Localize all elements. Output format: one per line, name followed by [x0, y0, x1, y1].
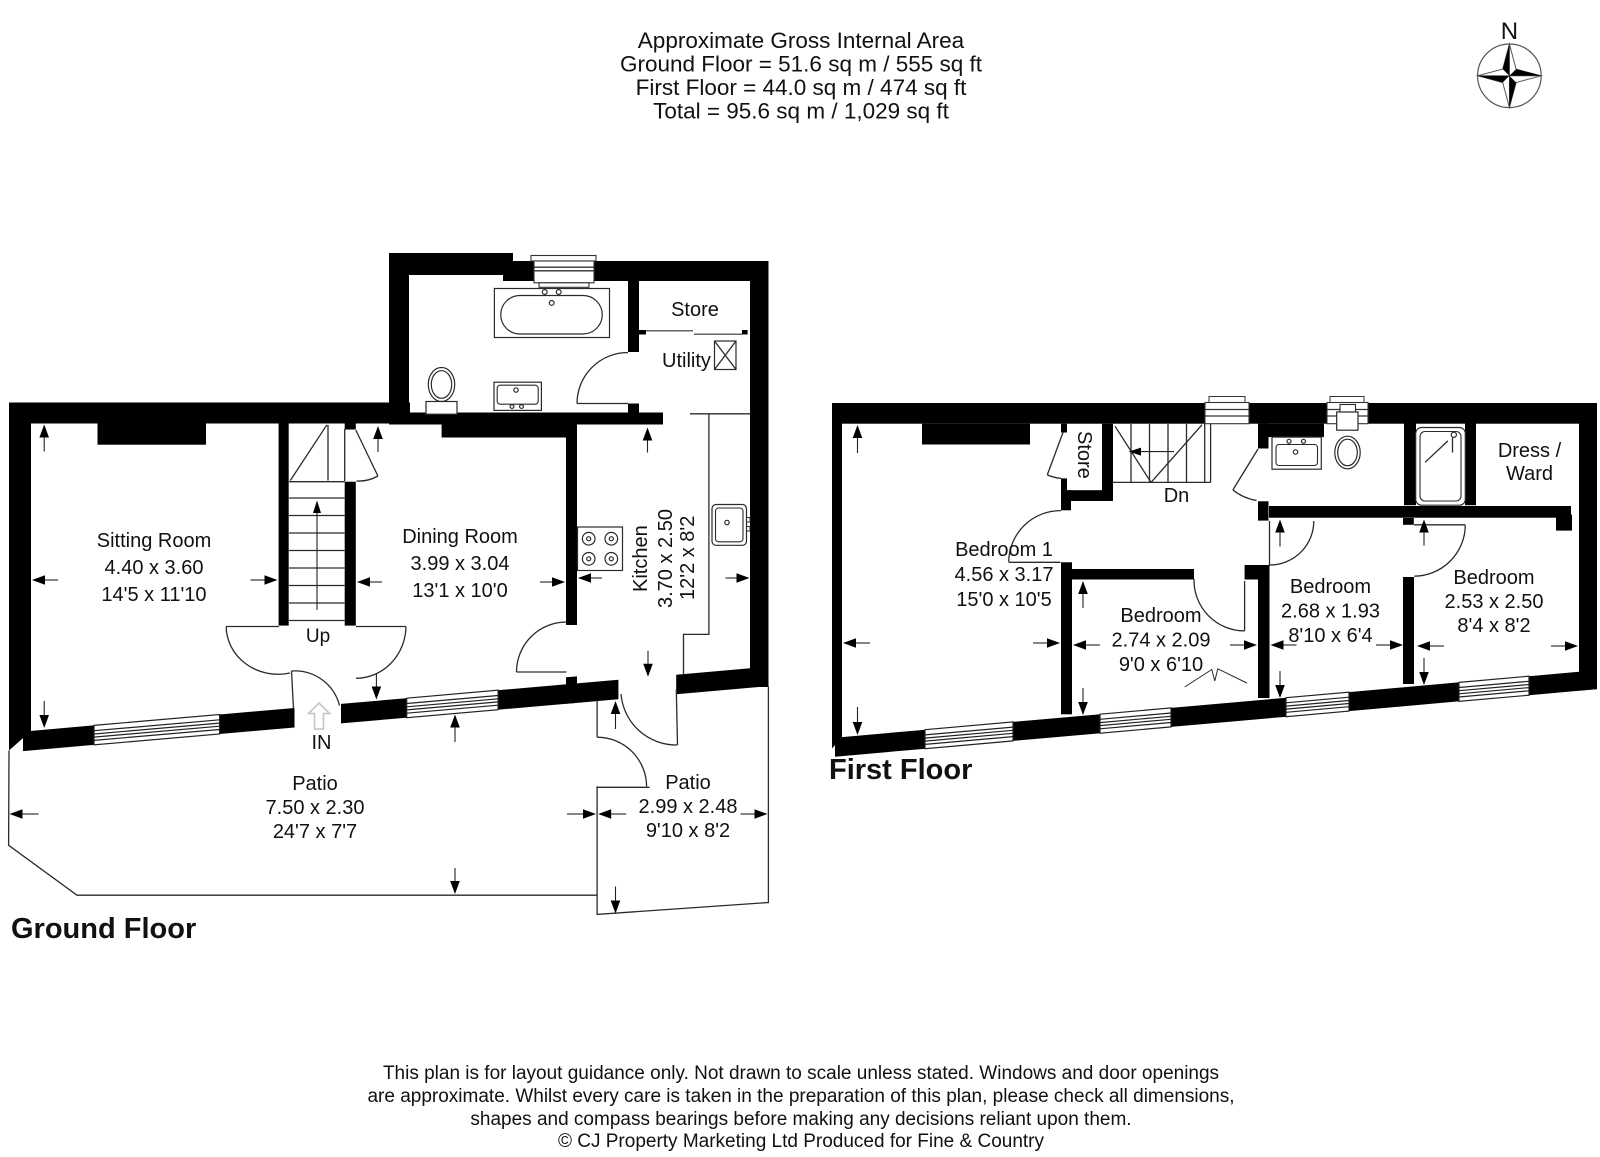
svg-text:Bedroom 1: Bedroom 1	[955, 539, 1053, 561]
svg-text:2.74 x 2.09: 2.74 x 2.09	[1112, 630, 1211, 652]
svg-text:2.68 x 1.93: 2.68 x 1.93	[1281, 601, 1380, 623]
svg-text:Utility: Utility	[662, 350, 711, 372]
svg-text:Ward: Ward	[1506, 463, 1553, 485]
svg-text:13'1 x 10'0: 13'1 x 10'0	[412, 580, 508, 602]
svg-text:Up: Up	[306, 626, 330, 647]
svg-text:N: N	[1501, 18, 1518, 45]
svg-text:shapes and compass bearings be: shapes and compass bearings before makin…	[470, 1109, 1131, 1130]
svg-text:12'2 x 8'2: 12'2 x 8'2	[677, 516, 699, 600]
svg-text:Sitting Room: Sitting Room	[97, 530, 212, 552]
svg-text:2.53 x 2.50: 2.53 x 2.50	[1445, 591, 1544, 613]
svg-text:Dining Room: Dining Room	[402, 526, 518, 548]
svg-text:Store: Store	[1073, 431, 1095, 479]
svg-text:15'0 x 10'5: 15'0 x 10'5	[956, 589, 1052, 611]
svg-text:4.56 x 3.17: 4.56 x 3.17	[955, 564, 1054, 586]
svg-text:Bedroom: Bedroom	[1120, 605, 1201, 627]
svg-text:9'0 x 6'10: 9'0 x 6'10	[1119, 654, 1203, 676]
svg-text:Total = 95.6 sq m / 1,029 sq f: Total = 95.6 sq m / 1,029 sq ft	[653, 99, 950, 124]
svg-text:Store: Store	[671, 299, 719, 321]
svg-text:14'5 x 11'10: 14'5 x 11'10	[101, 584, 206, 606]
svg-text:Dn: Dn	[1164, 485, 1190, 507]
svg-text:Patio: Patio	[665, 772, 711, 794]
svg-text:3.99 x 3.04: 3.99 x 3.04	[411, 553, 510, 575]
svg-text:24'7 x 7'7: 24'7 x 7'7	[273, 821, 357, 843]
svg-text:Kitchen: Kitchen	[630, 525, 652, 592]
svg-text:© CJ Property Marketing Ltd Pr: © CJ Property Marketing Ltd Produced for…	[558, 1131, 1045, 1152]
svg-text:This plan is for layout guidan: This plan is for layout guidance only. N…	[383, 1063, 1219, 1084]
svg-text:4.40 x 3.60: 4.40 x 3.60	[105, 557, 204, 579]
svg-text:IN: IN	[312, 732, 332, 754]
svg-text:8'10 x 6'4: 8'10 x 6'4	[1288, 625, 1372, 647]
svg-text:First Floor = 44.0 sq m / 474: First Floor = 44.0 sq m / 474 sq ft	[636, 75, 968, 100]
svg-text:2.99 x 2.48: 2.99 x 2.48	[639, 796, 738, 818]
svg-text:Approximate Gross Internal Are: Approximate Gross Internal Area	[638, 28, 965, 53]
svg-text:Dress /: Dress /	[1498, 440, 1562, 462]
svg-text:Patio: Patio	[292, 773, 338, 795]
svg-text:Bedroom: Bedroom	[1453, 567, 1534, 589]
svg-text:are approximate. Whilst every: are approximate. Whilst every care is ta…	[367, 1086, 1234, 1107]
svg-text:8'4 x 8'2: 8'4 x 8'2	[1457, 615, 1530, 637]
svg-text:7.50 x 2.30: 7.50 x 2.30	[266, 797, 365, 819]
svg-text:First Floor: First Floor	[829, 754, 972, 786]
svg-text:Ground Floor = 51.6 sq m / 555: Ground Floor = 51.6 sq m / 555 sq ft	[620, 52, 983, 77]
svg-text:Ground Floor: Ground Floor	[11, 913, 196, 945]
svg-text:3.70 x 2.50: 3.70 x 2.50	[655, 509, 677, 608]
svg-text:Bedroom: Bedroom	[1290, 576, 1371, 598]
svg-text:9'10 x 8'2: 9'10 x 8'2	[646, 820, 730, 842]
